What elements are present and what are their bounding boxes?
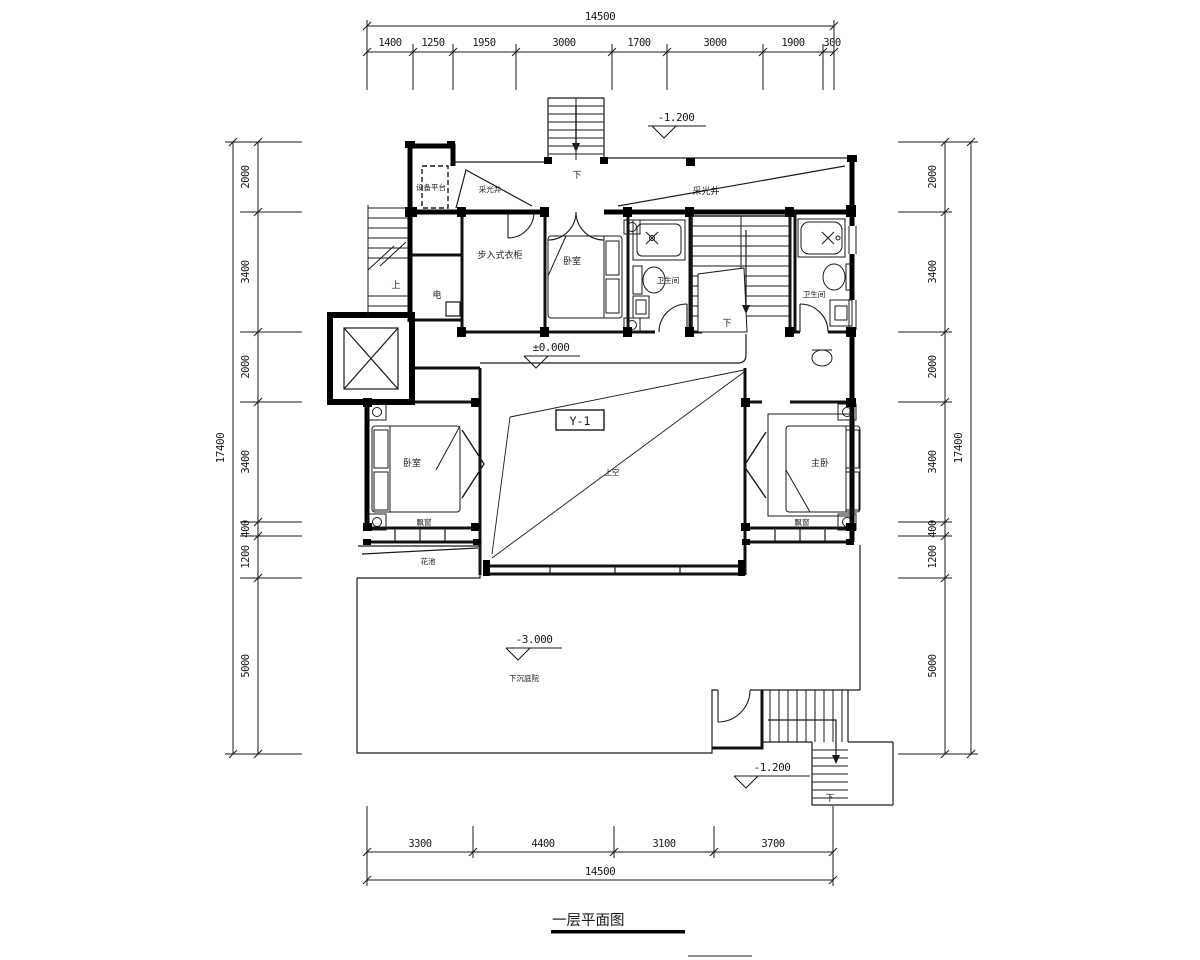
label-sunken-courtyard: 下沉庭院 [509, 673, 539, 683]
bath-east-door [800, 304, 828, 332]
dim-right-seg-1: 3400 [927, 260, 939, 283]
dim-bottom-seg-2: 3100 [652, 838, 675, 850]
elevator-shaft [330, 315, 412, 402]
label-bay-window-west: 飘窗 [417, 517, 432, 527]
dim-bottom-seg-0: 3300 [408, 838, 431, 850]
label-stair-up-west: 上 [391, 280, 400, 291]
title-underline [551, 930, 685, 934]
label-walk-in-closet: 步入式衣柜 [477, 249, 522, 261]
dim-left-seg-6: 5000 [240, 654, 252, 677]
floor-plan-drawing: 14500 1400 1250 1950 3000 1700 3000 1900… [0, 0, 1200, 960]
toilet-tank [633, 266, 642, 294]
elevation-courtyard: -3.000 [516, 633, 553, 646]
dim-right-seg-2: 2000 [927, 355, 939, 378]
closet-door [508, 212, 534, 238]
dimension-labels-top: 14500 1400 1250 1950 3000 1700 3000 1900… [378, 10, 841, 49]
dimension-chain-top [363, 20, 838, 90]
dim-right-seg-0: 2000 [927, 165, 939, 188]
dim-left-seg-3: 3400 [240, 450, 252, 473]
label-light-well-north: 采光井 [692, 185, 719, 197]
dim-left-seg-1: 3400 [240, 260, 252, 283]
elevation-marker-south-icon [734, 776, 810, 788]
stair-southeast [768, 690, 848, 798]
elevation-markers [506, 126, 810, 788]
stair-north-arrowhead-icon [572, 143, 580, 152]
label-bedroom-west: 卧室 [403, 457, 421, 469]
void-diagonals [492, 370, 744, 558]
label-bedroom-north: 卧室 [563, 255, 581, 267]
bathtub-icon [798, 219, 845, 257]
dim-bottom-total: 14500 [585, 865, 616, 878]
bathroom-west-fixtures [633, 220, 685, 318]
bath-west-door [659, 304, 687, 332]
dim-top-seg-5: 3000 [703, 37, 726, 49]
dim-right-seg-3: 3400 [927, 450, 939, 473]
elevation-marker-main-icon [524, 356, 580, 368]
dim-top-seg-2: 1950 [472, 37, 495, 49]
dim-top-seg-6: 1900 [781, 37, 804, 49]
vestibule-door [718, 690, 750, 722]
shower-head-icon [646, 232, 658, 244]
dim-top-seg-1: 1250 [421, 37, 444, 49]
dim-top-seg-3: 3000 [552, 37, 575, 49]
title-block: 一层平面图 [551, 913, 752, 956]
dim-right-total: 17400 [952, 433, 965, 464]
dim-top-seg-4: 1700 [627, 37, 650, 49]
floor-plan-sheet: 14500 1400 1250 1950 3000 1700 3000 1900… [0, 0, 1200, 960]
master-door-mark [744, 432, 766, 498]
shower-head-icon [822, 232, 834, 244]
dimension-labels-right: 17400 2000 3400 2000 3400 400 1200 5000 [927, 165, 965, 677]
elevation-main-floor: ±0.000 [533, 341, 570, 354]
label-beam-tag: Y-1 [570, 414, 591, 428]
dim-top-seg-7: 300 [823, 37, 841, 49]
dim-right-seg-5: 1200 [927, 545, 939, 568]
label-bathroom-east: 卫生间 [803, 289, 826, 299]
stair-west-exterior [368, 205, 408, 316]
elevation-north-entry: -1.200 [658, 111, 695, 124]
label-bathroom-west: 卫生间 [657, 275, 680, 285]
structural-columns [363, 141, 857, 576]
elevation-marker-north-icon [648, 126, 706, 138]
label-master-bedroom: 主卧 [811, 457, 829, 469]
dim-bottom-seg-1: 4400 [531, 838, 554, 850]
basin-icon [636, 300, 646, 314]
elevation-marker-courtyard-icon [506, 648, 562, 660]
dim-left-seg-4: 400 [240, 520, 252, 538]
dim-top-seg-0: 1400 [378, 37, 401, 49]
dimension-chain-left [225, 138, 302, 758]
label-bay-window-east: 飘窗 [795, 517, 810, 527]
dim-left-seg-2: 2000 [240, 355, 252, 378]
label-light-well-west: 采光井 [479, 184, 502, 194]
wash-basin-icon [812, 350, 832, 366]
label-equipment-platform: 设备平台 [416, 182, 446, 192]
dim-right-seg-4: 400 [927, 520, 939, 538]
label-stair-down-south: 下 [825, 794, 834, 804]
thin-lines [357, 98, 893, 805]
dim-left-seg-5: 1200 [240, 545, 252, 568]
label-stair-down-center: 下 [722, 319, 731, 329]
elevation-south-entry: -1.200 [754, 761, 791, 774]
dim-right-seg-6: 5000 [927, 654, 939, 677]
dim-bottom-seg-3: 3700 [761, 838, 784, 850]
stair-southeast-arrowhead-icon [832, 755, 840, 764]
dim-left-seg-0: 2000 [240, 165, 252, 188]
exterior-walls [367, 146, 852, 542]
vanity-icon [835, 306, 847, 320]
label-electrical-shaft: 电 [432, 289, 441, 301]
stair-central [692, 216, 790, 332]
dimension-labels-bottom: 3300 4400 3100 3700 14500 [408, 838, 784, 878]
label-planter: 花池 [421, 556, 436, 566]
drawing-title: 一层平面图 [552, 913, 625, 929]
label-void-above: 上空 [605, 467, 620, 477]
label-stair-down-north: 下 [572, 171, 581, 181]
dim-left-total: 17400 [214, 433, 227, 464]
toilet-icon [823, 264, 845, 290]
dim-top-total: 14500 [585, 10, 616, 23]
